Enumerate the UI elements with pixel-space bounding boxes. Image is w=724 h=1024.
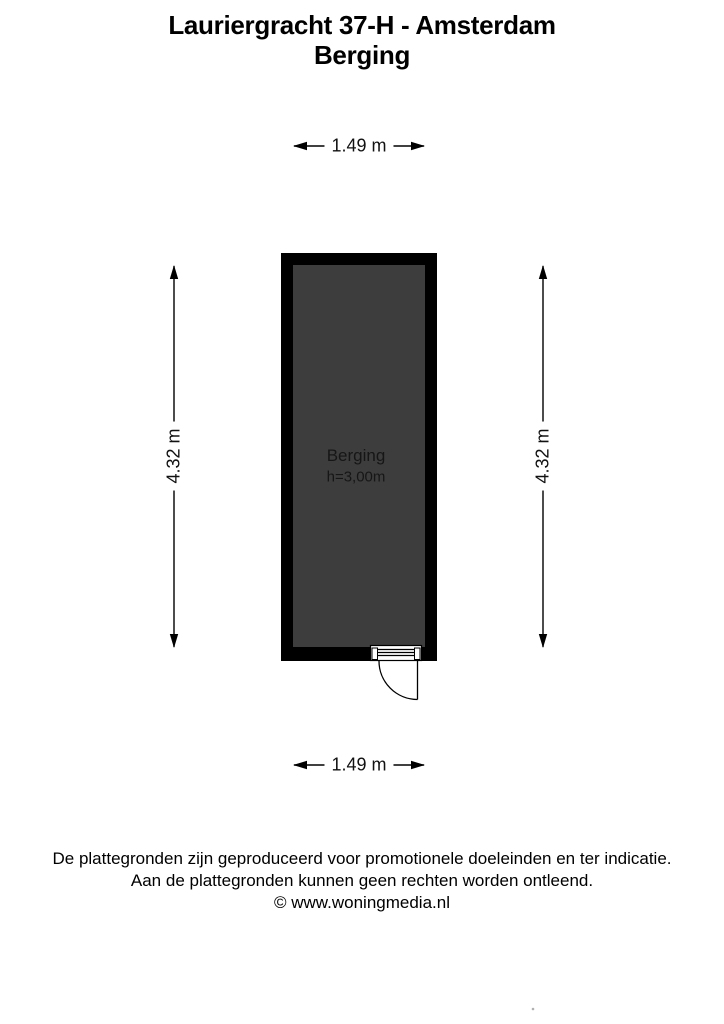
dimension-label-right: 4.32 m (533, 421, 554, 490)
copyright-line: © www.woningmedia.nl (0, 892, 724, 914)
footer: De plattegronden zijn geproduceerd voor … (0, 848, 724, 914)
dimension-label-bottom: 1.49 m (324, 755, 393, 776)
disclaimer-line-2: Aan de plattegronden kunnen geen rechten… (0, 870, 724, 892)
room-ceiling-height-label: h=3,00m (327, 469, 386, 486)
dimension-label-left: 4.32 m (164, 421, 185, 490)
dimension-label-top: 1.49 m (324, 136, 393, 157)
door-jamb-left (372, 648, 378, 660)
door (371, 646, 422, 700)
artifact-dot (532, 1008, 535, 1011)
disclaimer-line-1: De plattegronden zijn geproduceerd voor … (0, 848, 724, 870)
door-swing-arc (379, 661, 418, 700)
door-jamb-right (415, 648, 421, 660)
room-name-label: Berging (327, 446, 386, 466)
floorplan-page: Lauriergracht 37-H - Amsterdam Berging (0, 0, 724, 1024)
